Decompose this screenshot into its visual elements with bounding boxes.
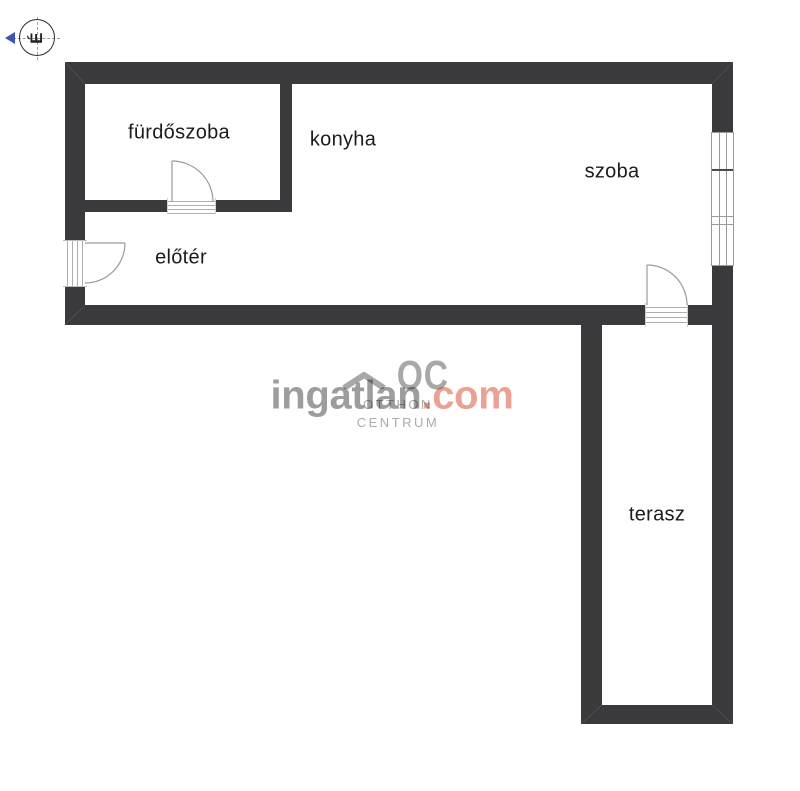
wall-main-bottom: [65, 305, 712, 325]
room-label-hall: előtér: [155, 247, 207, 270]
window-frame-line: [712, 216, 733, 217]
wall-bathroom-partition: [280, 84, 292, 200]
compass-north-letter: É: [27, 33, 47, 44]
window-mullion: [726, 133, 727, 265]
terrace-door-arc: [647, 265, 687, 305]
compass-north-arrow-icon: [5, 32, 15, 44]
entry-door-arc: [85, 243, 125, 283]
wall-outer-top: [65, 62, 733, 84]
room-label-bathroom: fürdőszoba: [128, 122, 230, 145]
terrace-door-threshold: [645, 303, 688, 327]
bathroom-door-threshold: [167, 198, 216, 214]
watermark-brand-name: ingatlan: [270, 374, 421, 418]
room-label-kitchen: konyha: [310, 129, 376, 152]
window-mullion: [719, 133, 720, 265]
wall-terrace-bottom: [581, 705, 733, 724]
wall-terrace-left: [581, 325, 602, 724]
window-szoba: [711, 132, 734, 266]
room-label-terrace: terasz: [629, 504, 685, 527]
watermark-brand-tld: .com: [421, 374, 513, 418]
window-divider: [712, 169, 733, 171]
floor-plan: É: [0, 0, 800, 791]
window-frame-line: [712, 224, 733, 225]
room-label-room: szoba: [585, 161, 640, 184]
watermark-brand: ingatlan.com: [270, 374, 513, 419]
compass: É: [0, 0, 75, 70]
bathroom-door-arc: [172, 161, 213, 202]
entry-door-threshold: [63, 240, 87, 287]
